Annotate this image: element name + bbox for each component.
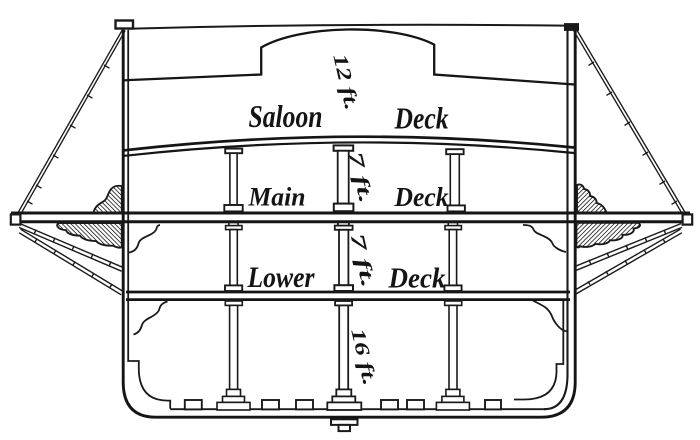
svg-text:16 ft.: 16 ft. [346,326,380,387]
svg-text:12 ft.: 12 ft. [328,52,362,112]
svg-text:7 ft.: 7 ft. [346,231,379,289]
svg-text:Deck: Deck [388,263,446,295]
svg-text:Saloon: Saloon [249,98,323,134]
svg-text:Deck: Deck [394,182,449,212]
svg-text:Deck: Deck [394,101,449,136]
svg-text:Lower: Lower [247,262,315,294]
svg-text:Main: Main [248,182,306,212]
